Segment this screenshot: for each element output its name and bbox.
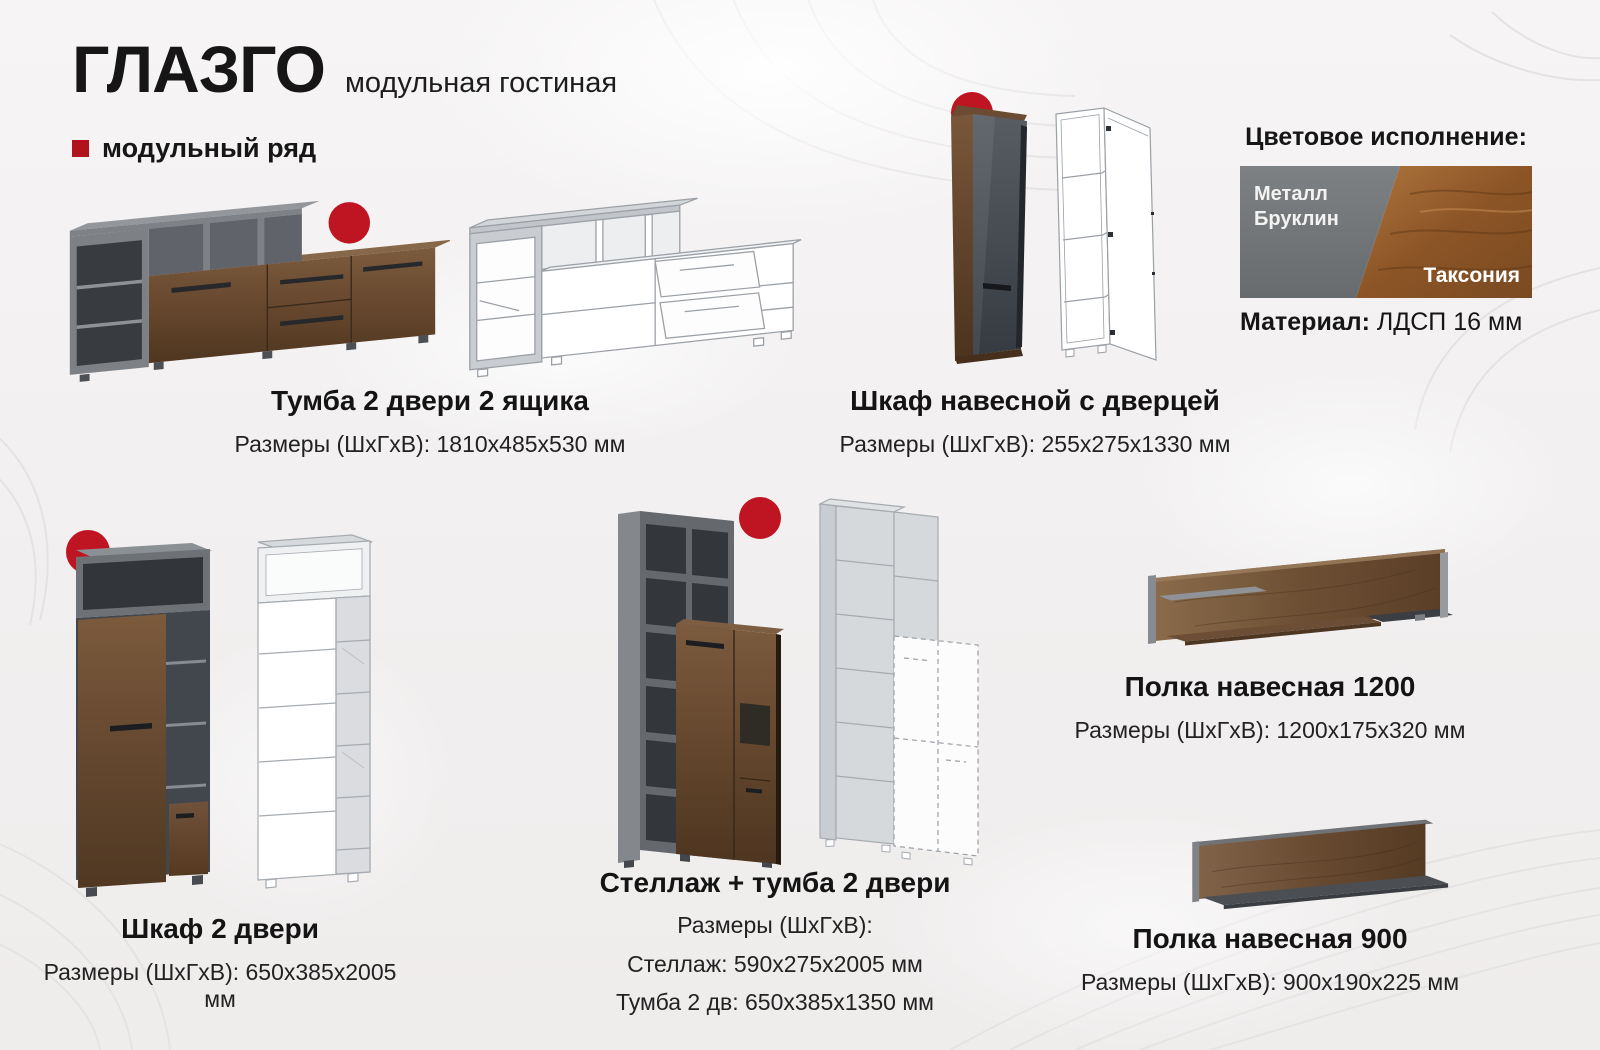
product-figure-cabinet-wireframe [248, 512, 388, 902]
product-name: Шкаф навесной с дверцей [830, 384, 1240, 418]
product-name: Полка навесная 1200 [1055, 670, 1485, 704]
series-row: модульный ряд [72, 133, 316, 164]
red-square-bullet-icon [72, 140, 89, 157]
series-label: модульный ряд [102, 133, 316, 164]
material-label: Материал: [1240, 308, 1370, 336]
product-caption-shelf-1200: Полка навесная 1200 Размеры (ШхГхВ): 120… [1055, 670, 1485, 744]
product-figure-tv-stand-wireframe [458, 192, 803, 380]
product-figure-wall-cabinet-rendered [915, 85, 1045, 370]
product-size: Размеры (ШхГхВ): 1810х485х530 мм [60, 431, 800, 459]
product-name: Стеллаж + тумба 2 двери [565, 866, 985, 900]
product-figure-wall-cabinet-wireframe [1048, 92, 1158, 364]
product-figure-tv-stand-rendered [55, 195, 450, 383]
product-size: Размеры (ШхГхВ): 900х190х225 мм [1055, 969, 1485, 997]
brand-title: ГЛАЗГО [72, 36, 325, 102]
color-options-heading: Цветовое исполнение: [1240, 123, 1532, 152]
material-line: Материал: ЛДСП 16 мм [1240, 308, 1522, 337]
product-figure-shelving-cabinet-wireframe [806, 488, 996, 866]
red-badge-icon [329, 202, 370, 243]
product-figure-shelf-1200 [1115, 522, 1495, 657]
product-caption-shelf-900: Полка навесная 900 Размеры (ШхГхВ): 900х… [1055, 922, 1485, 996]
product-figure-shelving-cabinet-rendered [610, 488, 810, 868]
product-size: Размеры (ШхГхВ): 255х275х1330 мм [830, 431, 1240, 459]
swatch-label-taxonia: Таксония [1423, 264, 1520, 288]
product-caption-cabinet: Шкаф 2 двери Размеры (ШхГхВ): 650х385х20… [25, 912, 415, 1014]
material-value: ЛДСП 16 мм [1377, 308, 1522, 336]
product-size-line: Тумба 2 дв: 650х385х1350 мм [565, 989, 985, 1017]
page-header: ГЛАЗГО модульная гостиная [72, 36, 617, 102]
color-swatch: Металл Бруклин Таксония [1240, 166, 1532, 298]
product-name: Шкаф 2 двери [25, 912, 415, 946]
product-size: Размеры (ШхГхВ): [565, 912, 985, 940]
product-size: Размеры (ШхГхВ): 650х385х2005 мм [25, 959, 415, 1014]
product-name: Тумба 2 двери 2 ящика [60, 384, 800, 418]
product-size: Размеры (ШхГхВ): 1200х175х320 мм [1055, 717, 1485, 745]
red-badge-icon [739, 497, 781, 539]
product-figure-shelf-900 [1148, 800, 1453, 910]
product-caption-tv-stand: Тумба 2 двери 2 ящика Размеры (ШхГхВ): 1… [60, 384, 800, 458]
product-figure-cabinet-rendered [60, 510, 225, 905]
product-caption-shelving-cabinet: Стеллаж + тумба 2 двери Размеры (ШхГхВ):… [565, 866, 985, 1016]
brand-subtitle: модульная гостиная [345, 67, 617, 100]
product-name: Полка навесная 900 [1055, 922, 1485, 956]
product-size-line: Стеллаж: 590х275х2005 мм [565, 951, 985, 979]
product-caption-wall-cabinet: Шкаф навесной с дверцей Размеры (ШхГхВ):… [830, 384, 1240, 458]
swatch-label-metal-brooklyn: Металл Бруклин [1254, 182, 1374, 232]
